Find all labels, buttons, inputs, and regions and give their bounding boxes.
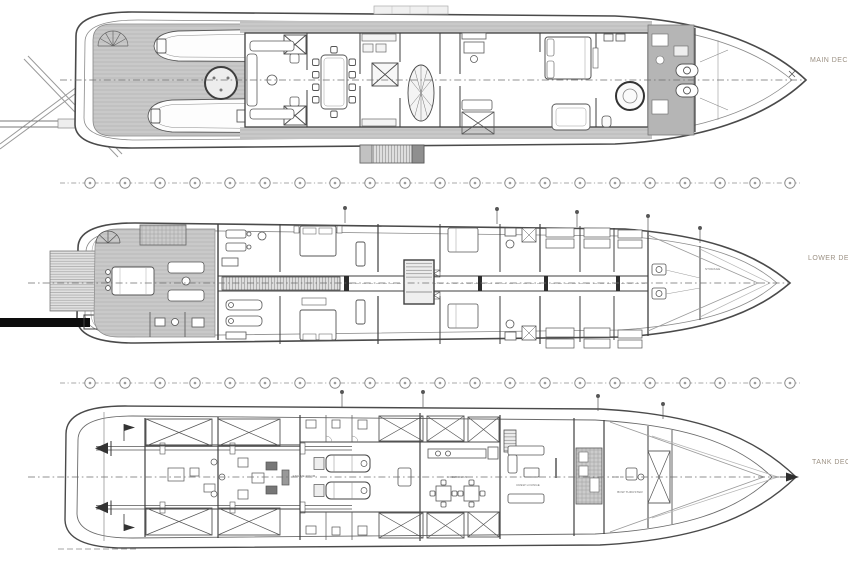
frame-station-dot [509, 382, 512, 385]
lower-deck-plan: STORAGE LOWER DECK [0, 206, 848, 348]
frame-station-dot [719, 382, 722, 385]
frame-station-dot [754, 182, 757, 185]
storage-label: STORAGE [705, 267, 720, 271]
lower-deck-label: LOWER DECK [808, 255, 848, 262]
frame-station-dot [789, 382, 792, 385]
frame-station-dot [299, 182, 302, 185]
beach-club-bar [106, 267, 154, 295]
frame-station-dot [474, 382, 477, 385]
frame-station-dot [369, 382, 372, 385]
technical-room [576, 448, 602, 504]
frame-station-dot [369, 182, 372, 185]
main-staircase [408, 65, 434, 121]
tank-deck-plan: ENGINE ROOM CREW MESS CREW LOUNGE [28, 390, 848, 549]
tank-deck-label: TANK DECK [812, 459, 848, 466]
frame-station-dot [614, 182, 617, 185]
frame-station-dot [159, 382, 162, 385]
frame-station-row [60, 178, 800, 188]
frame-station-dot [754, 382, 757, 385]
frame-station-dot [404, 382, 407, 385]
bow-thruster-label: BOW THRUSTER [617, 490, 643, 494]
elevator-shaft [372, 63, 398, 86]
frame-station-dot [194, 182, 197, 185]
frame-station-dot [404, 182, 407, 185]
frame-station-dot [649, 382, 652, 385]
engine-room-label: ENGINE ROOM [293, 474, 316, 478]
frame-station-dot [649, 182, 652, 185]
main-deck-label: MAIN DECK [810, 57, 848, 64]
frame-station-dot [544, 382, 547, 385]
stair-lobby [404, 260, 434, 304]
owner-bed [545, 37, 598, 79]
frame-station-dot [194, 382, 197, 385]
ga-drawing-sheet: MAIN DECK [0, 0, 848, 566]
side-deck-bottom [240, 127, 652, 139]
frame-station-dot [474, 182, 477, 185]
frame-station-dot [439, 182, 442, 185]
beach-club-sauna [140, 225, 186, 245]
engine-casing-corridor [222, 277, 340, 290]
frame-station-dot [684, 382, 687, 385]
frame-station-dot [334, 182, 337, 185]
crew-lounge-label: CREW LOUNGE [516, 483, 540, 487]
frame-station-dot [789, 182, 792, 185]
frame-station-dot [579, 182, 582, 185]
frame-station-dot [719, 182, 722, 185]
owner-lounge [552, 104, 590, 130]
frame-station-dot [124, 382, 127, 385]
frame-station-dot [544, 182, 547, 185]
frame-station-dot [159, 182, 162, 185]
roof-overhang [374, 6, 448, 14]
frame-station-dot [229, 382, 232, 385]
frame-station-dot [334, 382, 337, 385]
main-deck-plan: MAIN DECK [0, 6, 848, 163]
frame-station-dot [264, 182, 267, 185]
frame-station-dot [89, 182, 92, 185]
boarding-stairs [360, 145, 424, 163]
frame-station-dot [579, 382, 582, 385]
frame-station-dot [509, 182, 512, 185]
side-deck-top [240, 21, 652, 33]
deck-plans-svg: MAIN DECK [0, 0, 848, 566]
frame-station-row [60, 378, 800, 388]
frame-station-dot [614, 382, 617, 385]
frame-station-dot [124, 182, 127, 185]
frame-station-dot [229, 182, 232, 185]
frame-station-dot [299, 382, 302, 385]
frame-station-dot [684, 182, 687, 185]
frame-station-dot [264, 382, 267, 385]
frame-station-dot [89, 382, 92, 385]
frame-station-dot [439, 382, 442, 385]
aft-deck-round-table [205, 67, 237, 99]
